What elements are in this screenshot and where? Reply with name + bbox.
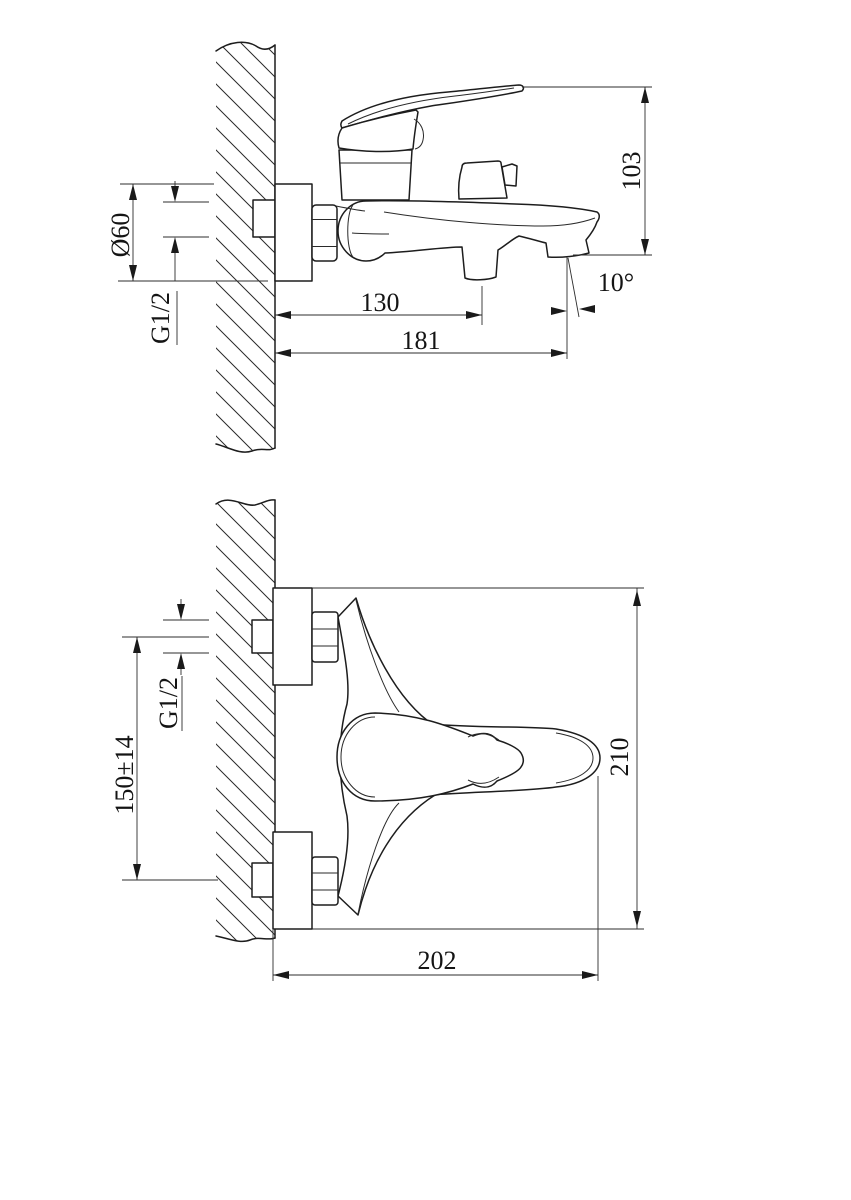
technical-drawing-sheet: Ø60 G1/2 103 130 [0, 0, 851, 1200]
dim-label-overall-height: 210 [605, 738, 634, 777]
dim-label-overall-projection: 181 [402, 326, 441, 355]
dimension-overall-height: 210 [605, 588, 641, 929]
dimension-spout-angle: 10° [551, 258, 634, 317]
dimension-thread-side: G1/2 [146, 181, 209, 345]
upper-hex-nut [312, 612, 338, 662]
dimension-thread-plan: G1/2 [154, 599, 209, 731]
wall-section-side-view [216, 42, 275, 452]
dimension-overall-projection: 181 [275, 257, 567, 359]
dimension-spout-projection: 130 [275, 286, 482, 325]
faucet-side-view [253, 85, 599, 281]
dim-label-thread-plan: G1/2 [154, 677, 183, 729]
mixer-body-spout [338, 201, 599, 280]
faucet-dimension-drawing: Ø60 G1/2 103 130 [0, 0, 851, 1200]
upper-wall-flange [273, 588, 312, 685]
diverter-knob-flap [502, 164, 517, 186]
dim-label-thread-side: G1/2 [146, 292, 175, 344]
faucet-handle-side [338, 85, 523, 152]
diverter-knob [459, 161, 507, 199]
inlet-pipe-stub [253, 200, 275, 237]
dim-label-spout-projection: 130 [361, 288, 400, 317]
side-view-drawing: Ø60 G1/2 103 130 [106, 42, 652, 452]
lower-hex-nut [312, 857, 338, 905]
dim-label-spout-angle: 10° [598, 268, 634, 297]
dim-label-flange-diameter: Ø60 [106, 213, 135, 258]
dim-label-height: 103 [617, 152, 646, 191]
cartridge-column [339, 150, 412, 200]
plan-view-drawing: G1/2 150±14 210 202 [110, 500, 644, 981]
wall-flange [275, 184, 312, 281]
upper-pipe-stub [252, 620, 273, 653]
dim-label-mounting-centers: 150±14 [110, 735, 139, 814]
lower-pipe-stub [252, 863, 273, 897]
faucet-plan-view [252, 588, 600, 929]
dim-label-overall-length: 202 [418, 946, 457, 975]
dimension-mounting-centers: 150±14 [110, 637, 218, 880]
lower-wall-flange [273, 832, 312, 929]
hex-nut [312, 205, 337, 261]
